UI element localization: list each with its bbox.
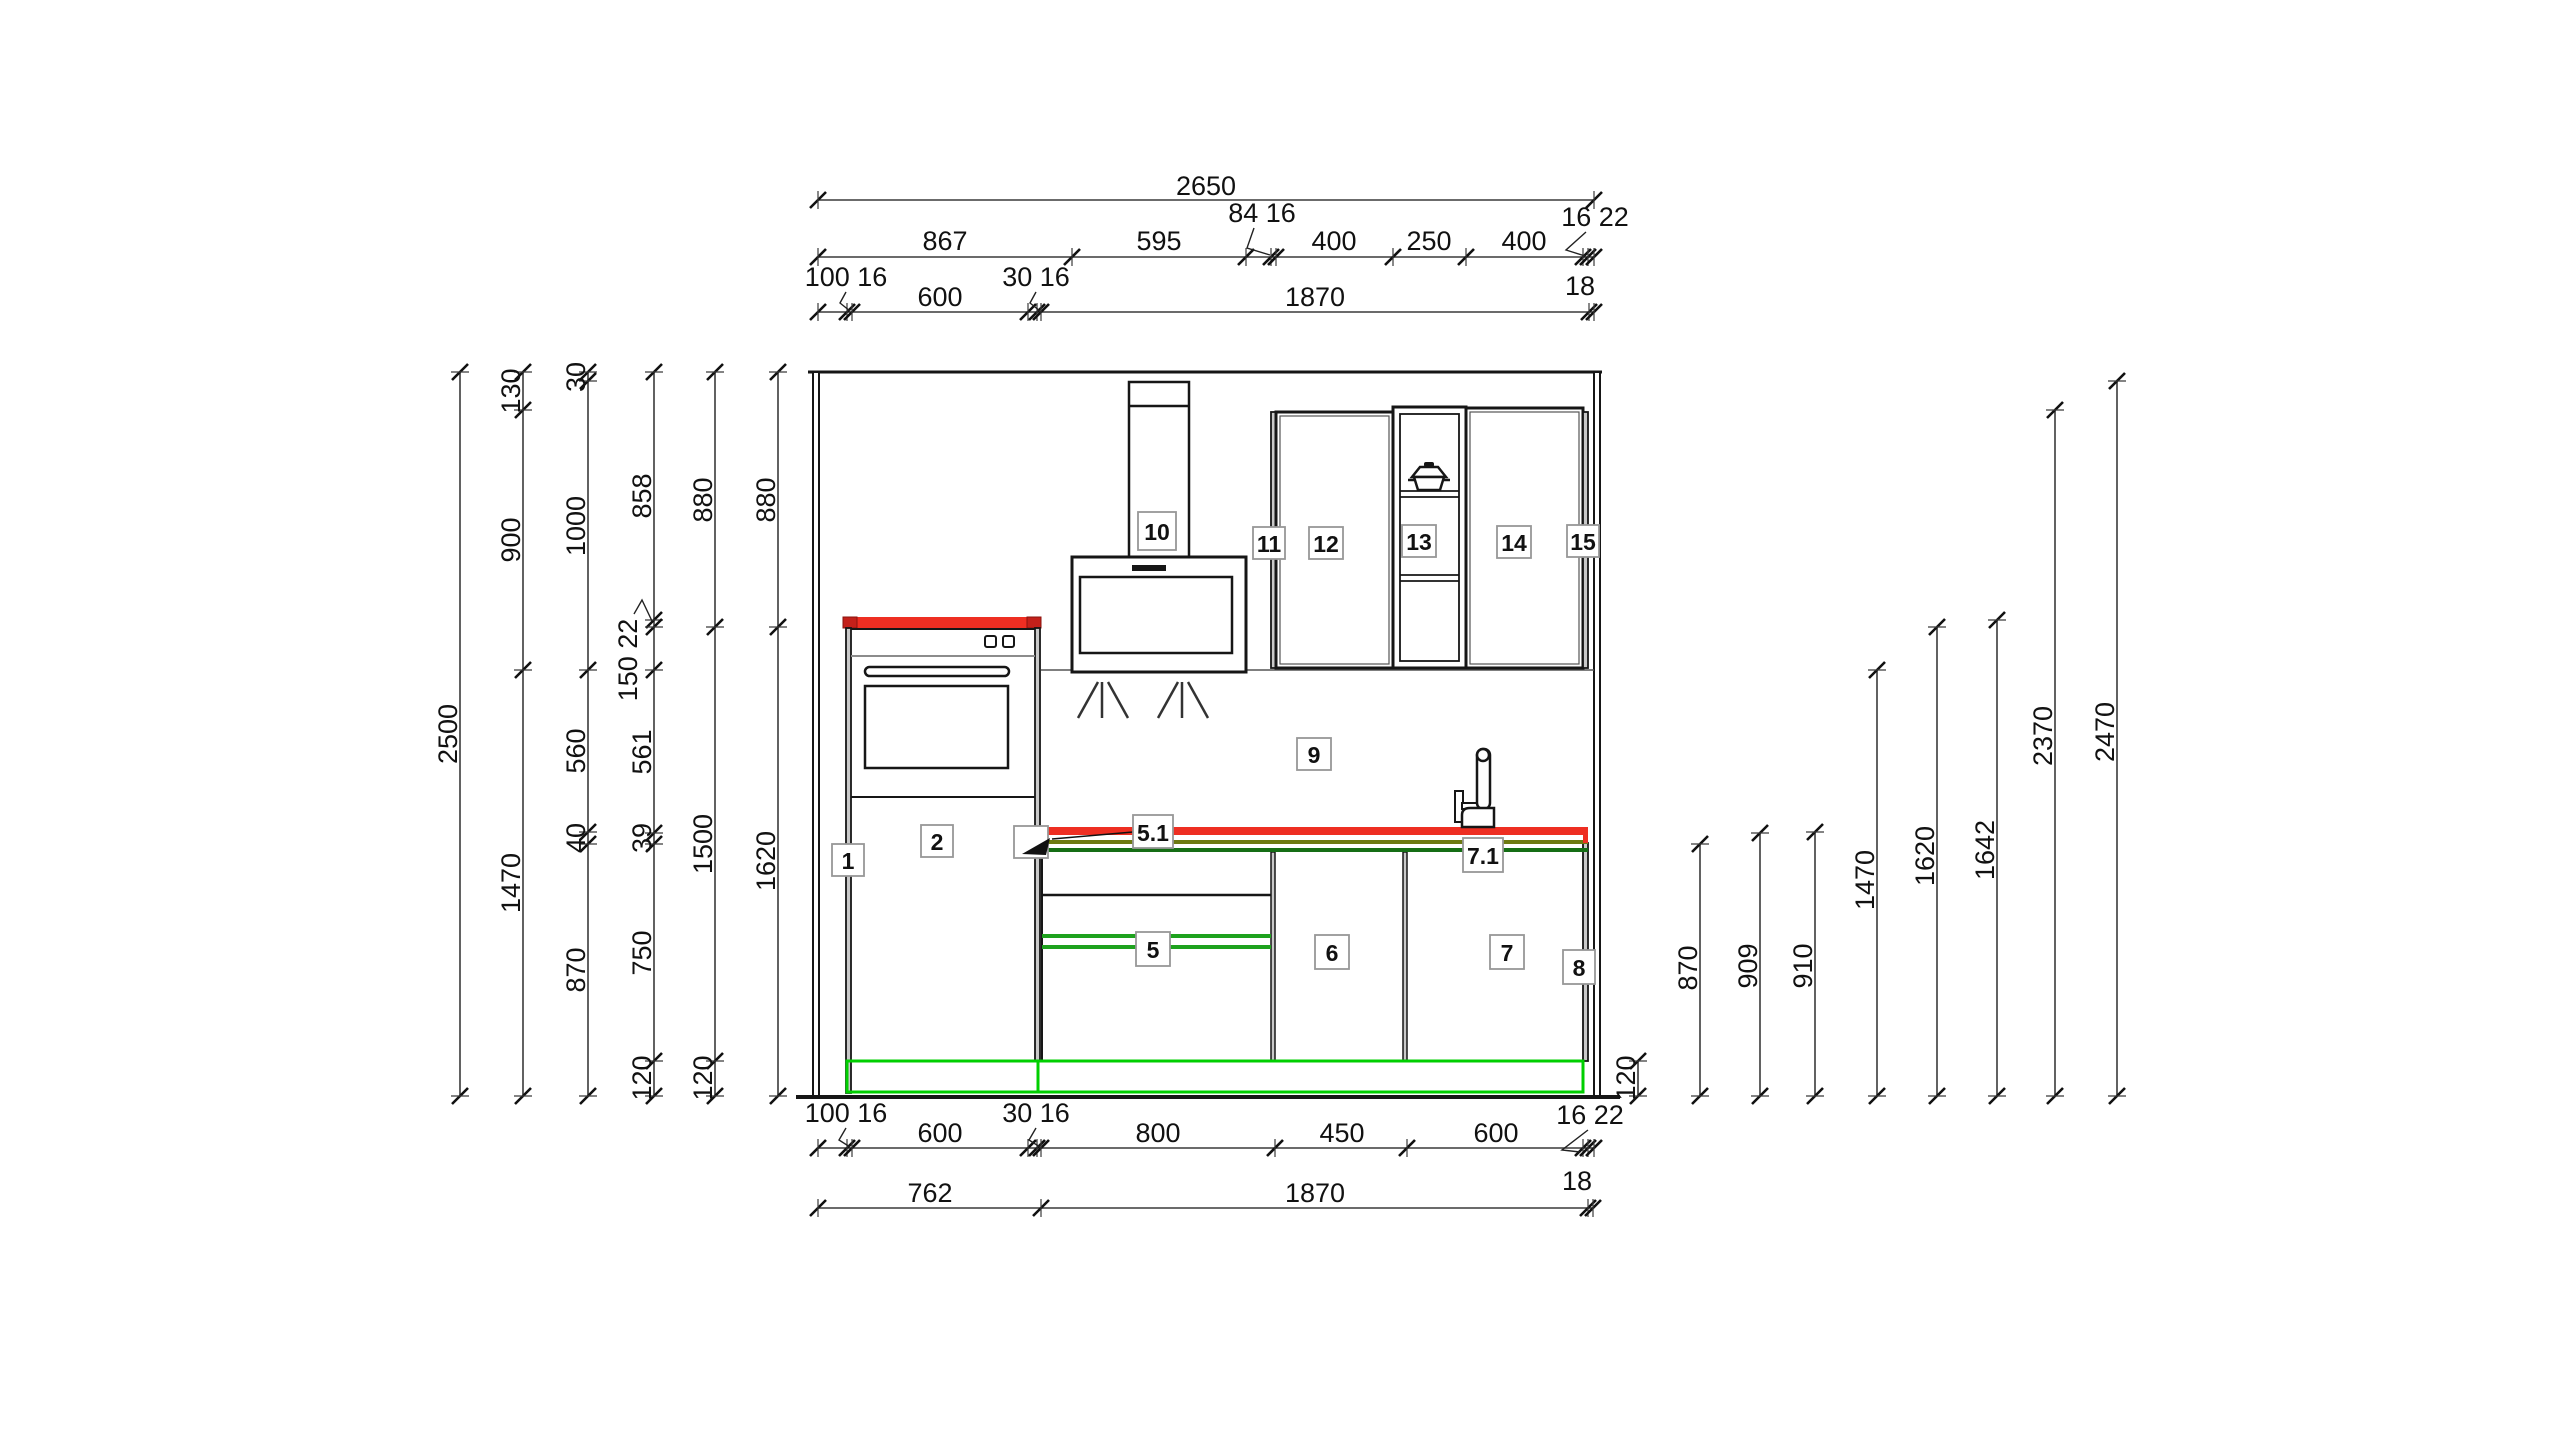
dim-left-chain5-line (706, 364, 724, 1104)
dim-870-left: 870 (561, 947, 591, 992)
item-label-8: 8 (1563, 950, 1595, 984)
item-label-9-text: 9 (1308, 742, 1321, 768)
dim-100-16-top: 100 16 (805, 262, 888, 292)
dim-600-top: 600 (917, 282, 962, 312)
plinth-outline (847, 1061, 1583, 1092)
dim-2500: 2500 (433, 704, 463, 764)
carcass-top-green-line (1041, 848, 1588, 852)
item-label-7: 7 (1490, 935, 1524, 969)
dim-600-bot-1: 600 (917, 1118, 962, 1148)
tall-cabinet-worktop-red (843, 617, 1041, 628)
worktop-red-cap-right (1583, 827, 1588, 843)
item-label-1: 1 (832, 844, 864, 876)
dim-1870-top: 1870 (1285, 282, 1345, 312)
dim-450: 450 (1319, 1118, 1364, 1148)
dim-2470: 2470 (2090, 702, 2120, 762)
dim-top-total: 2650 (1176, 171, 1236, 201)
item-label-15-text: 15 (1570, 529, 1596, 555)
item-label-1-text: 1 (842, 848, 855, 874)
item-label-12: 12 (1309, 527, 1343, 559)
dim-1870-bot: 1870 (1285, 1178, 1345, 1208)
hood-screen (1080, 577, 1232, 653)
dim-150-22: 150 22 (613, 619, 643, 702)
item-label-7-text: 7 (1501, 940, 1514, 966)
divider-5-6 (1271, 852, 1275, 1061)
dim-texts: 2650 867 595 400 250 400 84 16 16 22 100… (433, 171, 2120, 1208)
item-label-15: 15 (1567, 525, 1599, 557)
item-label-11: 11 (1253, 527, 1285, 559)
item-label-14: 14 (1497, 526, 1531, 558)
dim-880-c5: 880 (688, 477, 718, 522)
item-label-8-text: 8 (1573, 955, 1586, 981)
hood-handle (1132, 565, 1166, 571)
dim-120-c5: 120 (688, 1055, 718, 1100)
oven-knob-2 (1003, 636, 1014, 647)
worktop-bottom-olive-line (1041, 840, 1588, 844)
item-label-5-1: 5.1 (1133, 815, 1173, 848)
dim-130: 130 (496, 368, 526, 413)
item-label-14-text: 14 (1501, 530, 1527, 556)
item-label-7-1: 7.1 (1463, 838, 1503, 872)
dim-870-right: 870 (1673, 945, 1703, 990)
dim-30: 30 (561, 362, 591, 392)
extraction-arrows (1078, 682, 1208, 718)
dim-40: 40 (561, 823, 591, 853)
dim-560: 560 (561, 728, 591, 773)
dim-leaders (634, 228, 1588, 1152)
item-label-13: 13 (1402, 525, 1436, 557)
dim-595: 595 (1136, 226, 1181, 256)
dim-1620-left: 1620 (751, 831, 781, 891)
dim-800: 800 (1135, 1118, 1180, 1148)
dim-left-chain2-line (514, 364, 532, 1104)
item-label-10-text: 10 (1144, 519, 1170, 545)
dim-250: 250 (1406, 226, 1451, 256)
oven-window (865, 686, 1008, 768)
dim-1000: 1000 (561, 496, 591, 556)
dim-909: 909 (1733, 943, 1763, 988)
dim-left-chain6-line (769, 364, 787, 1104)
dim-1620-right: 1620 (1910, 826, 1940, 886)
worktop-red-line (1041, 827, 1583, 835)
kitchen-elevation: 1 2 5.1 5 6 7 7.1 8 9 10 11 12 13 14 15 (0, 0, 2560, 1440)
dim-1500: 1500 (688, 814, 718, 874)
dim-750: 750 (627, 930, 657, 975)
dim-1470-left: 1470 (496, 853, 526, 913)
worktop (1041, 827, 1588, 852)
item-label-10: 10 (1138, 512, 1176, 550)
dim-400a: 400 (1311, 226, 1356, 256)
drawing-canvas: 1 2 5.1 5 6 7 7.1 8 9 10 11 12 13 14 15 (0, 0, 2560, 1440)
dim-16-22-bot: 16 22 (1556, 1100, 1624, 1130)
dim-120-c4: 120 (627, 1055, 657, 1100)
dim-910: 910 (1788, 943, 1818, 988)
dim-561: 561 (627, 729, 657, 774)
dim-867: 867 (922, 226, 967, 256)
dim-100-16-bot: 100 16 (805, 1098, 888, 1128)
item-label-2: 2 (921, 825, 953, 857)
dim-39: 39 (627, 823, 657, 853)
item-label-2-text: 2 (931, 829, 944, 855)
item-label-12-text: 12 (1313, 531, 1339, 557)
item-label-6-text: 6 (1326, 940, 1339, 966)
item-label-9: 9 (1297, 738, 1331, 770)
plinth (847, 1061, 1583, 1092)
dim-30-16-bot: 30 16 (1002, 1098, 1070, 1128)
faucet-icon (1455, 749, 1494, 827)
left-wall (813, 372, 819, 1096)
dim-858: 858 (627, 473, 657, 518)
item-label-5: 5 (1136, 932, 1170, 966)
dim-1642: 1642 (1970, 820, 2000, 880)
dim-762: 762 (907, 1178, 952, 1208)
dim-84-16: 84 16 (1228, 198, 1296, 228)
dim-120-right: 120 (1611, 1055, 1641, 1100)
red-cap-left (843, 617, 857, 628)
right-wall (1594, 372, 1600, 1096)
item-label-7-1-text: 7.1 (1467, 843, 1499, 869)
dim-900: 900 (496, 517, 526, 562)
dim-16-22-top: 16 22 (1561, 202, 1629, 232)
item-label-6: 6 (1315, 935, 1349, 969)
item-label-5-1-text: 5.1 (1137, 820, 1169, 846)
dim-30-16-top: 30 16 (1002, 262, 1070, 292)
dim-400b: 400 (1501, 226, 1546, 256)
dim-2370: 2370 (2028, 706, 2058, 766)
item-label-5-text: 5 (1147, 937, 1160, 963)
dim-1470-right: 1470 (1850, 850, 1880, 910)
dim-600-bot-2: 600 (1473, 1118, 1518, 1148)
oven-handle (865, 667, 1009, 676)
red-cap-right (1027, 617, 1041, 628)
dim-18-bot: 18 (1562, 1166, 1592, 1196)
dim-18-top: 18 (1565, 271, 1595, 301)
dim-880-c6: 880 (751, 477, 781, 522)
item-label-11-text: 11 (1257, 531, 1282, 557)
item-label-13-text: 13 (1406, 529, 1432, 555)
oven-knob-1 (985, 636, 996, 647)
divider-6-7 (1403, 852, 1407, 1061)
